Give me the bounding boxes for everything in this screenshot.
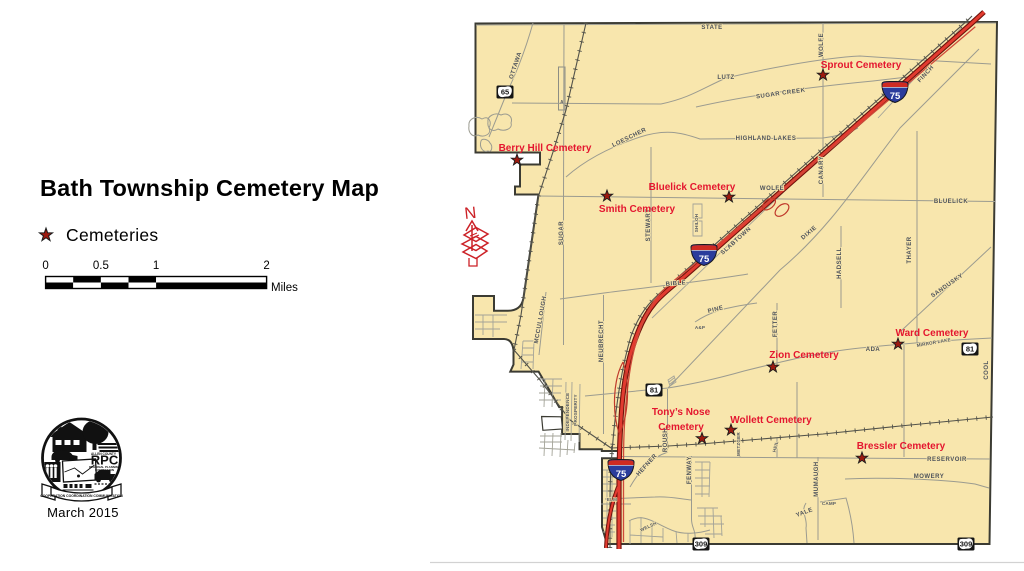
svg-text:ADA: ADA: [866, 347, 881, 353]
svg-text:A&P: A&P: [695, 325, 705, 330]
svg-text:ELM: ELM: [607, 497, 617, 502]
svg-text:Sprout Cemetery: Sprout Cemetery: [821, 60, 902, 71]
svg-text:Tony’s Nose: Tony’s Nose: [652, 407, 711, 418]
svg-text:SHILOH: SHILOH: [694, 213, 699, 232]
svg-text:Berry Hill Cemetery: Berry Hill Cemetery: [499, 143, 592, 154]
svg-text:LUTZ: LUTZ: [717, 75, 734, 81]
svg-text:PROSPERITY: PROSPERITY: [573, 394, 578, 426]
svg-text:N: N: [464, 204, 478, 223]
svg-text:81: 81: [650, 386, 658, 395]
svg-text:CANARY: CANARY: [819, 156, 825, 184]
svg-text:65: 65: [501, 88, 509, 97]
svg-text:WOLFE: WOLFE: [760, 186, 784, 192]
svg-text:COOL: COOL: [984, 360, 990, 379]
svg-text:FETTER: FETTER: [773, 311, 779, 337]
svg-text:81: 81: [966, 345, 974, 354]
svg-text:2: 2: [263, 260, 269, 272]
svg-text:MOWERY: MOWERY: [914, 474, 944, 480]
svg-text:WOLFE: WOLFE: [819, 33, 825, 57]
svg-text:HADSELL: HADSELL: [837, 247, 843, 279]
svg-text:Cemetery: Cemetery: [658, 422, 704, 433]
svg-text:March 2015: March 2015: [47, 505, 119, 520]
svg-text:NEUBRECHT: NEUBRECHT: [599, 320, 605, 362]
svg-text:COOPERATION COORDINATION COM: COOPERATION COORDINATION COMMUNICATION: [40, 494, 123, 498]
svg-text:HIGHLAND LAKES: HIGHLAND LAKES: [736, 136, 797, 142]
svg-text:STATE: STATE: [701, 25, 722, 31]
svg-text:309: 309: [960, 540, 973, 549]
svg-text:Bluelick Cemetery: Bluelick Cemetery: [649, 182, 736, 193]
svg-text:CAMP: CAMP: [822, 501, 836, 506]
svg-text:Wollett Cemetery: Wollett Cemetery: [730, 415, 812, 426]
svg-text:0: 0: [42, 260, 48, 272]
svg-text:RESERVOIR: RESERVOIR: [927, 457, 967, 463]
svg-text:FENWAY: FENWAY: [687, 456, 693, 484]
svg-text:1: 1: [153, 260, 159, 272]
svg-text:309: 309: [695, 540, 708, 549]
svg-text:Zion Cemetery: Zion Cemetery: [769, 350, 839, 361]
svg-text:Bressler Cemetery: Bressler Cemetery: [857, 441, 946, 452]
svg-text:Ward Cemetery: Ward Cemetery: [896, 328, 969, 339]
svg-text:MUMAUGH: MUMAUGH: [814, 461, 820, 497]
svg-text:METZGER: METZGER: [736, 432, 741, 456]
svg-text:0.5: 0.5: [93, 260, 109, 272]
svg-text:SUGAR: SUGAR: [559, 221, 565, 245]
svg-text:BLUELICK: BLUELICK: [934, 199, 968, 205]
svg-text:INDEPENDENCE: INDEPENDENCE: [565, 393, 570, 432]
svg-text:Smith Cemetery: Smith Cemetery: [599, 204, 676, 215]
svg-text:THAYER: THAYER: [907, 236, 913, 263]
svg-text:Miles: Miles: [271, 282, 298, 294]
svg-text:Cemeteries: Cemeteries: [66, 225, 158, 245]
svg-text:Bath Township Cemetery Map: Bath Township Cemetery Map: [40, 175, 379, 201]
